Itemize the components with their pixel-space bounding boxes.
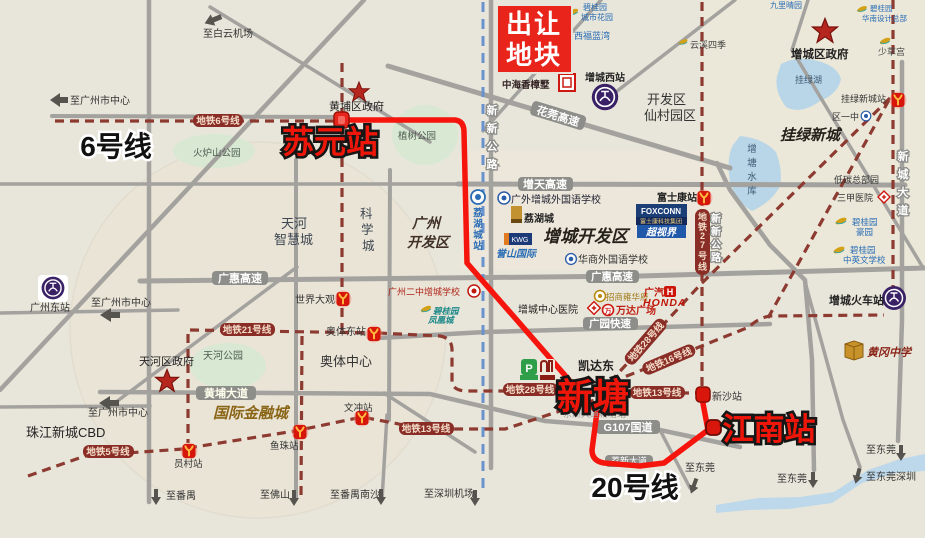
svg-text:G107国道: G107国道	[604, 420, 653, 434]
svg-text:地铁13号线: 地铁13号线	[402, 423, 451, 435]
svg-text:广州东站: 广州东站	[30, 301, 70, 314]
svg-text:黄冈中学: 黄冈中学	[867, 346, 913, 359]
svg-text:西福蓝湾: 西福蓝湾	[574, 30, 610, 41]
svg-text:城: 城	[473, 229, 483, 241]
svg-text:至番禺: 至番禺	[166, 490, 196, 502]
svg-text:挂绿湖: 挂绿湖	[795, 74, 822, 85]
svg-text:KWG: KWG	[512, 237, 529, 244]
svg-text:H: H	[667, 287, 674, 297]
svg-text:广州二中增城学校: 广州二中增城学校	[388, 286, 460, 297]
svg-text:至番禺南沙: 至番禺南沙	[330, 488, 380, 501]
svg-text:至东莞: 至东莞	[866, 443, 896, 456]
svg-text:FOXCONN: FOXCONN	[641, 207, 681, 216]
svg-text:智慧城: 智慧城	[274, 232, 313, 247]
svg-text:黄埔大道: 黄埔大道	[204, 386, 248, 400]
svg-text:站: 站	[473, 240, 483, 252]
svg-text:火炉山公园: 火炉山公园	[193, 147, 241, 159]
svg-text:超视界: 超视界	[645, 227, 677, 239]
svg-text:天河区政府: 天河区政府	[139, 354, 194, 368]
svg-text:挂绿新城: 挂绿新城	[780, 126, 843, 144]
svg-text:云溪四季: 云溪四季	[690, 39, 726, 50]
svg-text:地块: 地块	[506, 40, 562, 70]
svg-text:HONDA: HONDA	[643, 297, 687, 309]
svg-text:鱼珠站: 鱼珠站	[270, 440, 299, 452]
svg-text:至佛山: 至佛山	[260, 488, 290, 501]
svg-text:公: 公	[711, 239, 721, 251]
svg-text:碧桂园: 碧桂园	[852, 217, 878, 227]
svg-text:凯达东: 凯达东	[578, 358, 614, 373]
svg-text:地铁6号线: 地铁6号线	[196, 115, 240, 127]
svg-text:挂绿新城站: 挂绿新城站	[841, 93, 886, 104]
svg-text:增城西站: 增城西站	[585, 71, 625, 84]
svg-text:九里晴园: 九里晴园	[770, 0, 802, 10]
svg-text:地铁5号线: 地铁5号线	[86, 446, 130, 458]
svg-text:新: 新	[898, 149, 909, 163]
svg-text:广惠高速: 广惠高速	[218, 271, 262, 285]
svg-text:广州: 广州	[411, 215, 442, 232]
svg-text:碧桂园: 碧桂园	[870, 3, 893, 13]
svg-text:地: 地	[698, 211, 707, 222]
svg-text:员村站: 员村站	[174, 458, 203, 470]
svg-text:新沙站: 新沙站	[712, 390, 742, 403]
svg-text:广园快速: 广园快速	[589, 317, 631, 330]
svg-text:增城中心医院: 增城中心医院	[518, 303, 578, 316]
svg-text:7: 7	[700, 240, 705, 250]
svg-text:国际金融城: 国际金融城	[213, 404, 291, 422]
svg-text:至白云机场: 至白云机场	[203, 27, 253, 40]
svg-text:地铁21号线: 地铁21号线	[223, 324, 272, 336]
svg-text:道: 道	[898, 203, 909, 217]
svg-text:增天高速: 增天高速	[523, 177, 567, 191]
svg-text:至广州市中心: 至广州市中心	[91, 296, 151, 309]
svg-text:新: 新	[711, 225, 721, 238]
svg-text:富士康站: 富士康站	[657, 191, 697, 204]
svg-text:6号线: 6号线	[80, 131, 152, 162]
svg-text:湖: 湖	[473, 218, 483, 230]
svg-text:科: 科	[360, 207, 373, 221]
svg-text:增: 增	[747, 143, 757, 155]
svg-text:增城火车站: 增城火车站	[829, 293, 884, 307]
svg-text:大: 大	[898, 185, 909, 199]
svg-text:开发区: 开发区	[407, 234, 452, 251]
svg-text:新: 新	[711, 212, 721, 225]
svg-text:新: 新	[487, 121, 498, 135]
svg-text:中英文学校: 中英文学校	[843, 255, 886, 265]
svg-text:广惠高速: 广惠高速	[591, 270, 633, 283]
svg-text:奥体中心: 奥体中心	[320, 354, 372, 369]
svg-text:荔: 荔	[472, 207, 483, 219]
svg-text:广外增城外国语学校: 广外增城外国语学校	[511, 193, 601, 206]
svg-text:天河: 天河	[281, 216, 307, 231]
svg-text:黄埔区政府: 黄埔区政府	[329, 99, 384, 113]
svg-text:仙村园区: 仙村园区	[644, 108, 696, 123]
svg-text:三甲医院: 三甲医院	[837, 192, 873, 203]
svg-text:至东莞深圳: 至东莞深圳	[866, 470, 916, 483]
svg-text:江南站: 江南站	[723, 412, 816, 447]
svg-text:开发区: 开发区	[647, 92, 686, 107]
svg-text:至深圳机场: 至深圳机场	[424, 487, 474, 500]
svg-text:地铁28号线: 地铁28号线	[506, 384, 555, 396]
svg-text:世界大观: 世界大观	[295, 293, 335, 306]
svg-text:库: 库	[747, 185, 757, 197]
svg-text:20号线: 20号线	[591, 472, 678, 503]
svg-text:碧桂园: 碧桂园	[850, 245, 876, 255]
svg-text:出让: 出让	[506, 9, 562, 39]
svg-text:苏元站: 苏元站	[282, 124, 378, 160]
svg-text:中海香樟墅: 中海香樟墅	[502, 79, 550, 91]
svg-text:奥体东站: 奥体东站	[326, 325, 366, 338]
svg-text:城: 城	[898, 167, 909, 181]
svg-text:公: 公	[487, 140, 498, 153]
svg-text:少草宫: 少草宫	[878, 46, 905, 57]
svg-text:地铁13号线: 地铁13号线	[633, 387, 682, 399]
svg-text:塘: 塘	[747, 157, 757, 169]
svg-text:至广州市中心: 至广州市中心	[88, 406, 148, 419]
svg-text:珠江新城CBD: 珠江新城CBD	[26, 425, 105, 440]
svg-text:至广州市中心: 至广州市中心	[70, 94, 130, 107]
svg-text:荔湖城: 荔湖城	[523, 212, 554, 225]
svg-text:线: 线	[698, 261, 707, 272]
svg-text:号: 号	[698, 251, 707, 261]
svg-text:水: 水	[747, 171, 757, 183]
svg-text:增城区政府: 增城区政府	[791, 47, 849, 61]
svg-text:城市花园: 城市花园	[581, 12, 613, 22]
svg-text:富士康科技集团: 富士康科技集团	[640, 218, 682, 226]
svg-text:新塘: 新塘	[557, 376, 629, 417]
svg-text:豪园: 豪园	[856, 227, 873, 237]
svg-text:华商外国语学校: 华商外国语学校	[578, 253, 648, 266]
svg-text:城: 城	[362, 239, 375, 253]
svg-text:新: 新	[487, 103, 498, 117]
svg-text:至东莞: 至东莞	[777, 472, 807, 485]
svg-text:誉山国际: 誉山国际	[496, 248, 538, 260]
svg-text:凤凰城: 凤凰城	[427, 315, 455, 325]
svg-text:路: 路	[487, 157, 499, 171]
svg-text:P: P	[525, 363, 532, 375]
svg-text:万: 万	[604, 308, 612, 316]
svg-text:低碳总部园: 低碳总部园	[834, 174, 879, 185]
svg-text:碧桂园: 碧桂园	[583, 2, 607, 12]
svg-text:路: 路	[711, 251, 722, 264]
svg-text:天河公园: 天河公园	[203, 350, 243, 362]
svg-text:学: 学	[361, 222, 374, 237]
svg-text:至东莞: 至东莞	[685, 461, 715, 474]
svg-text:文冲站: 文冲站	[344, 402, 373, 414]
svg-text:植树公园: 植树公园	[398, 130, 436, 142]
svg-text:增城开发区: 增城开发区	[543, 227, 631, 246]
svg-text:华南设计总部: 华南设计总部	[862, 13, 907, 23]
svg-text:区一中: 区一中	[832, 111, 859, 122]
